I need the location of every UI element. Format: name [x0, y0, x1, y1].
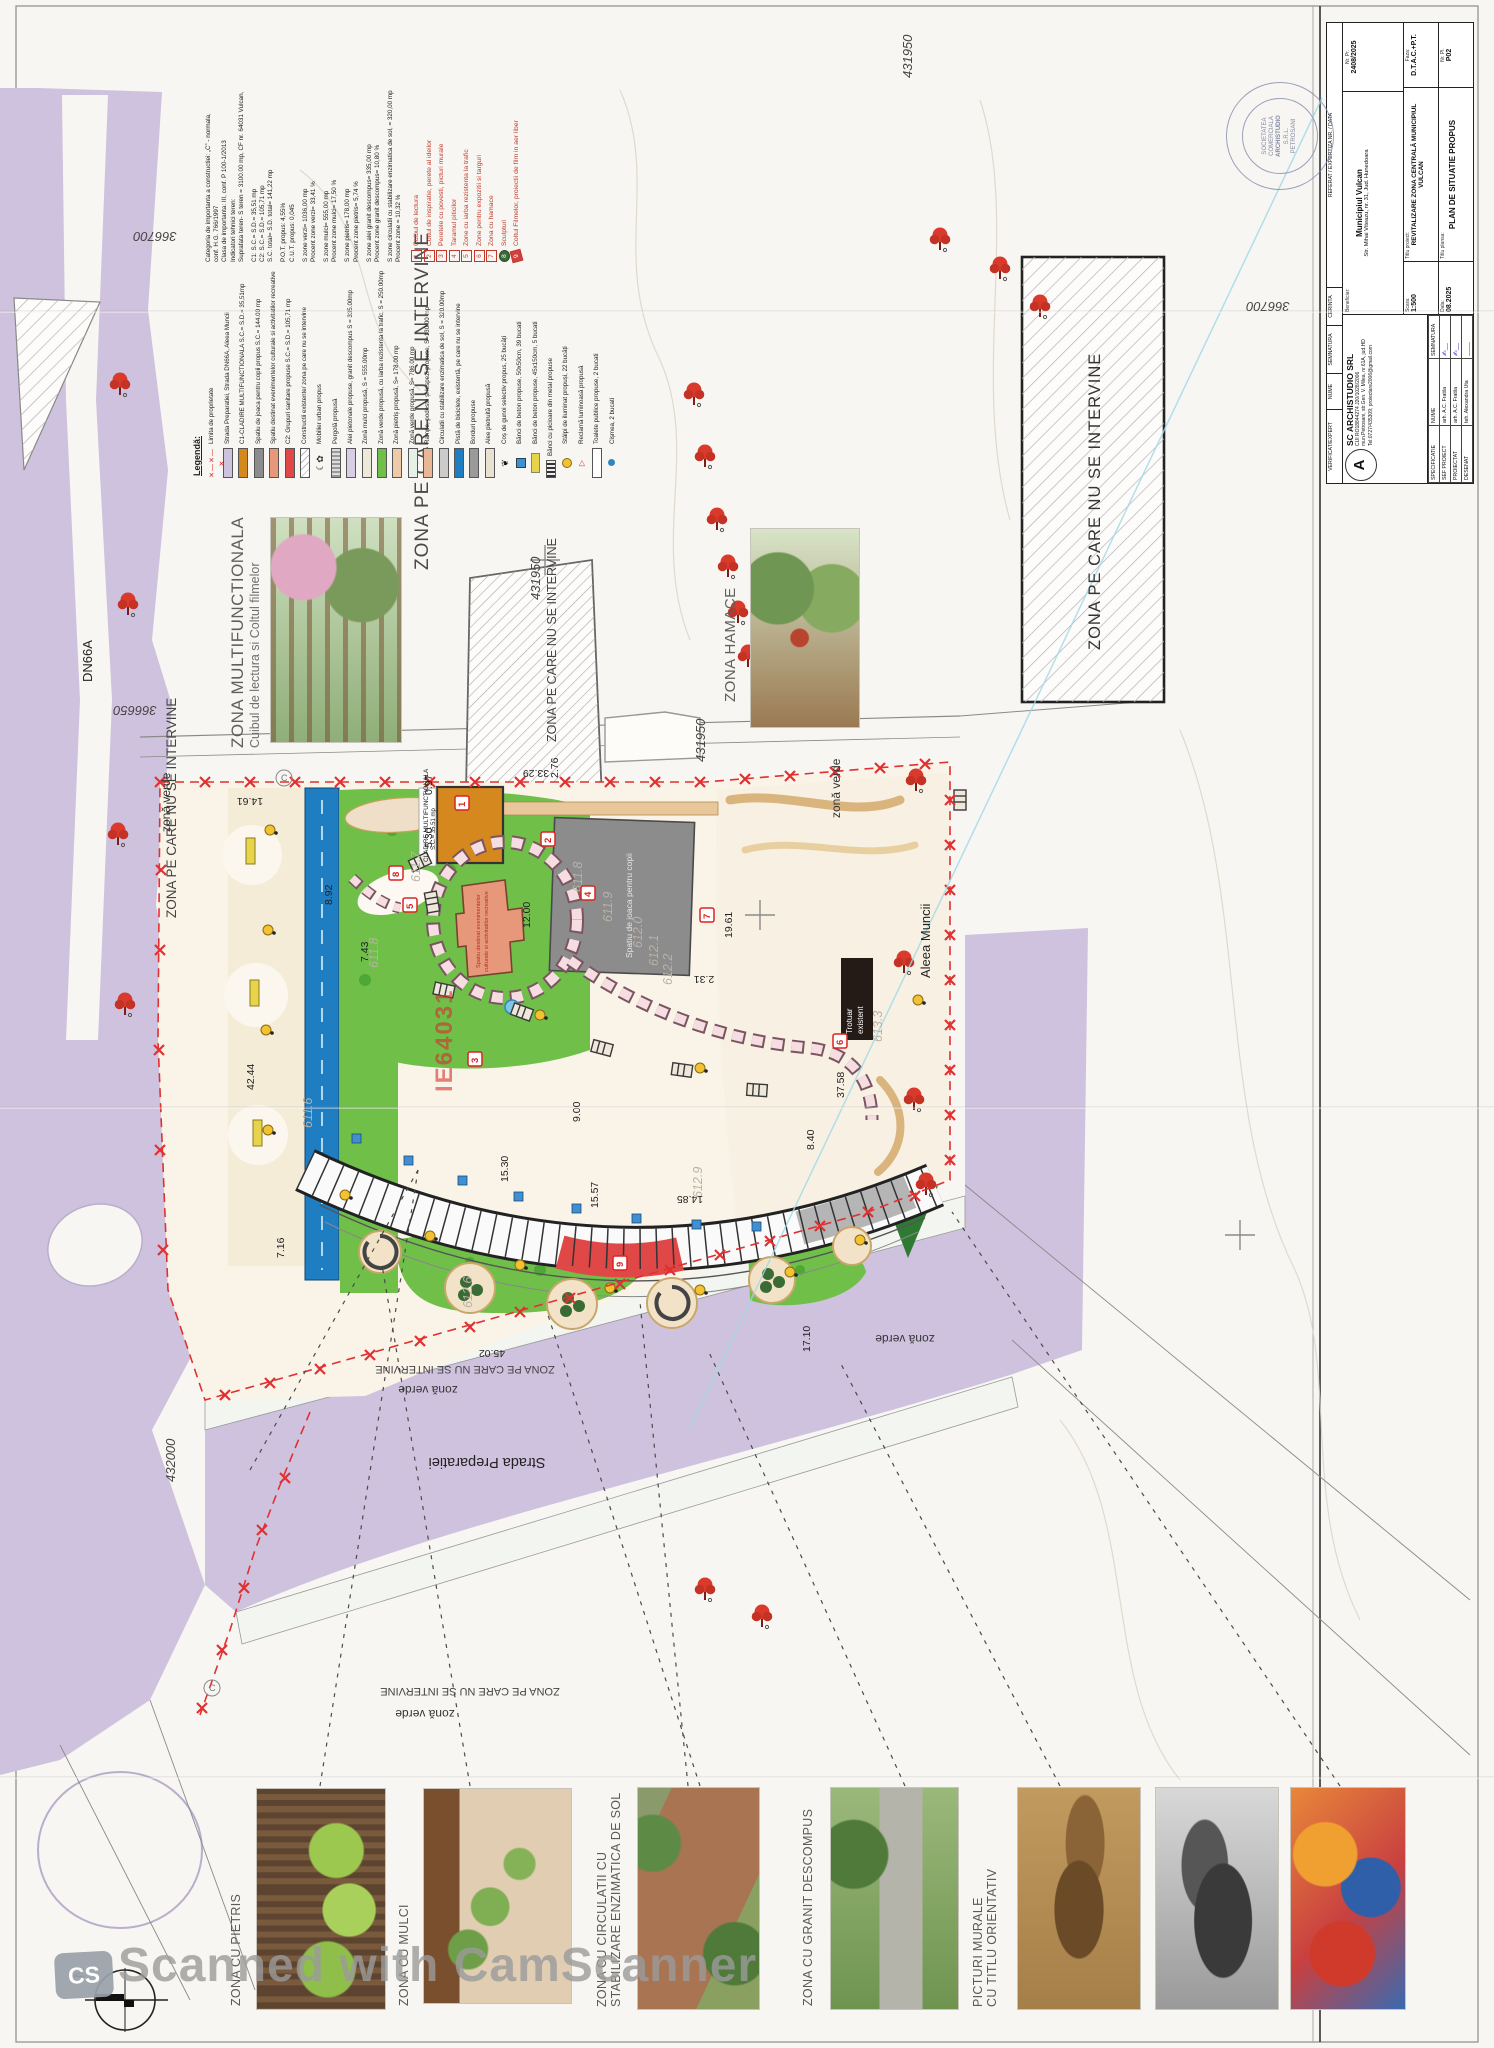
beneficiary-cell: Beneficiar: Municipiul Vulcan Str. Mihai… — [1343, 91, 1403, 314]
render-photo-multifunctional — [270, 517, 402, 743]
legend-item: Zonă verde propusă, S= 786.00 mp — [405, 270, 420, 478]
svg-text:366700: 366700 — [1246, 299, 1290, 314]
svg-text:zonă verde: zonă verde — [829, 758, 843, 818]
green-swatch — [408, 448, 418, 478]
svg-text:2.76: 2.76 — [549, 757, 561, 778]
svg-text:611.6: 611.6 — [301, 1098, 315, 1128]
svg-text:431950: 431950 — [900, 34, 915, 78]
svg-text:37.58: 37.58 — [835, 1072, 847, 1098]
legend-item: ✕—✕—✕Limita de proprietate — [205, 270, 220, 478]
svg-text:7.43: 7.43 — [359, 941, 371, 962]
legend-item: Pergolă propusă — [328, 270, 343, 478]
label-cadastral: IE64031 — [431, 989, 458, 1092]
label-no-intervention-right-rect: ZONA PE CARE NU SE INTERVINE — [1086, 353, 1104, 650]
bike-lane-swatch — [454, 448, 464, 478]
svg-text:12.00: 12.00 — [521, 902, 533, 928]
label-no-intervention-strip1: ZONA PE CARE NU SE INTERVINE — [375, 1363, 555, 1375]
fountain-icon — [608, 448, 618, 478]
svg-text:33.29: 33.29 — [523, 767, 549, 779]
svg-text:5.30: 5.30 — [423, 827, 435, 848]
svg-text:7.16: 7.16 — [275, 1237, 287, 1258]
photo-mural — [1017, 1787, 1141, 2010]
svg-text:zonă verde: zonă verde — [398, 1383, 458, 1397]
mulch-swatch — [362, 448, 372, 478]
svg-text:42.44: 42.44 — [245, 1064, 257, 1090]
legend-item: Alei pietonale propuse, granit descompus… — [344, 270, 359, 478]
curbs-swatch — [469, 448, 479, 478]
project-number-cell: Nr. Pr. 2408/2025 — [1343, 23, 1403, 91]
legend-item: Circulatii cu stabilizare enzimatica de … — [436, 270, 451, 478]
svg-text:4: 4 — [583, 891, 594, 897]
gravel-swatch — [392, 448, 402, 478]
svg-text:7: 7 — [702, 914, 713, 919]
legend-item: Cișmea, 2 bucati — [605, 270, 620, 478]
cinema-screen-icon: 9 — [510, 249, 524, 263]
svg-text:zonă verde: zonă verde — [159, 772, 173, 832]
scanned-site-plan-page: ZONA PE CARE NU SE INTERVINE ZONA PE CAR… — [0, 0, 1494, 2048]
legend-item: Zonă verde propusă, cu iarba rezistenta … — [374, 270, 389, 478]
svg-text:8: 8 — [391, 872, 402, 877]
legend-item: ☾✿Mobilier urban propus — [313, 270, 328, 478]
svg-text:45.02: 45.02 — [479, 1347, 505, 1359]
legend-items: ✕—✕—✕Limita de proprietate Strada Prepar… — [205, 270, 621, 478]
square-bench-icon — [516, 448, 526, 478]
label-dn66a: DN66A — [80, 640, 95, 682]
svg-text:9.00: 9.00 — [571, 1101, 583, 1122]
label-aleea-muncii: Aleea Muncii — [918, 903, 933, 978]
svg-text:5: 5 — [405, 903, 416, 909]
existing-hatch-swatch — [300, 448, 310, 478]
svg-text:zonă verde: zonă verde — [875, 1332, 935, 1346]
legend-item: Zonă mulci propusă, S = 555.00mp — [359, 270, 374, 478]
svg-text:612.0: 612.0 — [631, 917, 645, 948]
svg-text:366650: 366650 — [113, 703, 157, 718]
legend-item: Pistă de biciclete, existentă, pe care n… — [451, 270, 466, 478]
svg-text:613.3: 613.3 — [871, 1011, 885, 1042]
svg-text:19.61: 19.61 — [723, 912, 735, 938]
sanitary-swatch — [285, 448, 295, 478]
svg-text:1: 1 — [457, 801, 468, 807]
legend-item: Alee pietruită propusă — [482, 270, 497, 478]
svg-text:9: 9 — [615, 1262, 626, 1267]
ramps-swatch — [423, 448, 433, 478]
svg-text:existent: existent — [856, 1006, 865, 1034]
trash-bin-icon: ❦ — [500, 448, 510, 478]
svg-text:611.9: 611.9 — [601, 892, 615, 922]
legend-item: Toalete publice propuse, 2 bucati — [590, 270, 605, 478]
svg-text:6: 6 — [835, 1040, 846, 1045]
svg-text:432000: 432000 — [163, 1438, 178, 1482]
title-cells: Titlu proiect:REVITALIZARE ZONA CENTRALĂ… — [1404, 87, 1473, 261]
legend-item: Bănci de beton propuse, 45x150cm, 5 buca… — [528, 270, 543, 478]
svg-text:C: C — [281, 773, 288, 783]
phase-cells: Faza:D.T.A.C.+P.T. Nr. Pl.P02 — [1404, 23, 1473, 87]
long-bench-icon — [531, 448, 541, 478]
traffic-grass-swatch — [377, 448, 387, 478]
svg-text:15.57: 15.57 — [589, 1182, 601, 1208]
photo-label-mural: PICTURI MURALE CU TITLU ORIENTATIV — [972, 1787, 1002, 2007]
svg-text:8.40: 8.40 — [805, 1129, 817, 1150]
legend-item: Bănci cu picioare din metal propuse — [544, 270, 559, 478]
legend-item: Borduri propuse — [467, 270, 482, 478]
camscanner-watermark: Scanned with CamScanner — [118, 1938, 757, 1993]
svg-text:zonă verde: zonă verde — [395, 1707, 455, 1721]
svg-text:15.30: 15.30 — [499, 1156, 511, 1182]
render-photo-hamace — [750, 528, 860, 728]
photo-label-granit: ZONA CU GRANIT DESCOMPUS — [802, 1786, 818, 2006]
label-strada-preparatiei: Strada Preparatiei — [429, 1454, 546, 1470]
zona-hamace-label: ZONA HAMACE — [722, 552, 742, 702]
zona-multifunctionala-label: ZONA MULTIFUNCTIONALA Cuibul de lectura … — [228, 518, 272, 748]
svg-text:14.61: 14.61 — [237, 795, 263, 807]
svg-text:culturale si activitatilor rec: culturale si activitatilor recreative — [484, 891, 490, 972]
legend-item: Rampe, podeste și lespezi propuse, S=130… — [420, 270, 435, 478]
svg-text:17.10: 17.10 — [801, 1326, 813, 1352]
legend-item: Spatiu destinat evenimentelor culturale … — [267, 270, 282, 478]
legend-item: Bănci de beton propuse, 50x50cm, 39 buca… — [513, 270, 528, 478]
pergola-swatch — [331, 448, 341, 478]
title-block: VERIFICAT/EXPERT NUME SEMNATURA CERINTA … — [1326, 22, 1474, 484]
road-swatch — [223, 448, 233, 478]
legend-item: ▷Reclamă luminoasă propusă — [574, 270, 589, 478]
svg-text:14.85: 14.85 — [677, 1193, 703, 1205]
legend-item: Zonă pietriș propusă, S= 178.00 mp — [390, 270, 405, 478]
svg-text:612.2: 612.2 — [661, 954, 675, 985]
playground-swatch — [254, 448, 264, 478]
legend: Legendă: ✕—✕—✕Limita de proprietate Stra… — [192, 42, 628, 478]
paved-alley-swatch — [485, 448, 495, 478]
legend-item: C2: Grupuri sanitare propuse S.C.= S.D.=… — [282, 270, 297, 478]
metal-bench-icon — [546, 460, 556, 478]
svg-text:8.92: 8.92 — [323, 884, 335, 905]
boundary-line-icon: ✕—✕—✕ — [208, 448, 218, 478]
svg-text:C: C — [209, 1683, 216, 1693]
label-no-intervention-mid: ZONA PE CARE NU SE INTERVINE — [545, 538, 559, 742]
svg-text:Trotuar: Trotuar — [845, 1008, 854, 1034]
camscanner-logo: CS — [54, 1951, 114, 2000]
legend-numbered-features: 1Cuibul de lectura 2Coltul de inspiratie… — [410, 44, 523, 262]
svg-text:612.6: 612.6 — [461, 1277, 475, 1308]
archistudio-logo-icon: A — [1345, 449, 1377, 481]
light-pole-icon — [562, 448, 572, 478]
legend-title: Legendă: — [192, 42, 202, 476]
svg-text:0.97: 0.97 — [423, 774, 435, 795]
sculpture-icon: 8 — [499, 250, 510, 262]
legend-statistics: Categoria de importanta a constructiei: … — [205, 44, 403, 262]
svg-text:Spatiu destinat evenimentelor: Spatiu destinat evenimentelor — [476, 894, 482, 968]
label-no-intervention-strip2: ZONA PE CARE NU SE INTERVINE — [380, 1685, 560, 1697]
legend-item: Spatiu de joaca pentru copii propus S.C.… — [251, 270, 266, 478]
legend-item: ❦Coș de gunoi selectiv propus, 25 bucăți — [497, 270, 512, 478]
svg-text:2: 2 — [543, 838, 554, 843]
granite-path-swatch — [346, 448, 356, 478]
events-swatch — [269, 448, 279, 478]
legend-item: Stâlpi de iluminat propuși, 22 bucăți — [559, 270, 574, 478]
svg-text:431950: 431950 — [528, 556, 543, 600]
building-c1-swatch — [238, 448, 248, 478]
company-stamp: SOCIETATEA COMERCIALA ARCHISTUDIO S.R.L.… — [1226, 82, 1334, 190]
urban-furniture-icon: ☾✿ — [315, 448, 325, 478]
svg-text:611.7: 611.7 — [409, 851, 423, 882]
svg-text:2.31: 2.31 — [694, 973, 715, 985]
svg-text:366700: 366700 — [133, 229, 177, 244]
illuminated-sign-icon: ▷ — [577, 448, 587, 478]
legend-item: Constructii existente/ zona pe care nu s… — [297, 270, 312, 478]
legend-item: C1-CLADIRE MULTIFUNCTIONALA S.C.= S.D.= … — [236, 270, 251, 478]
svg-text:3: 3 — [470, 1058, 481, 1063]
toilets-icon — [592, 448, 602, 478]
svg-text:612.1: 612.1 — [647, 935, 661, 966]
scale-date-cells: Scara:1:500 Data:08.2025 — [1404, 261, 1473, 314]
company-info: A SC ARCHISTUDIO SRL CUI RO18844274 J20/… — [1343, 315, 1428, 483]
photo-sculpture-hands — [1155, 1787, 1279, 2010]
photo-colorful-mural — [1290, 1787, 1406, 2010]
photo-granit — [830, 1787, 959, 2010]
legend-item: Strada Preparatiei, Strada DN66A, Aleea … — [220, 270, 235, 478]
stabilized-soil-swatch — [439, 448, 449, 478]
svg-text:431950: 431950 — [693, 718, 708, 762]
specification-table: SPECIFICATIENUMESEMNATURA SEF PROIECTarh… — [1428, 315, 1473, 483]
